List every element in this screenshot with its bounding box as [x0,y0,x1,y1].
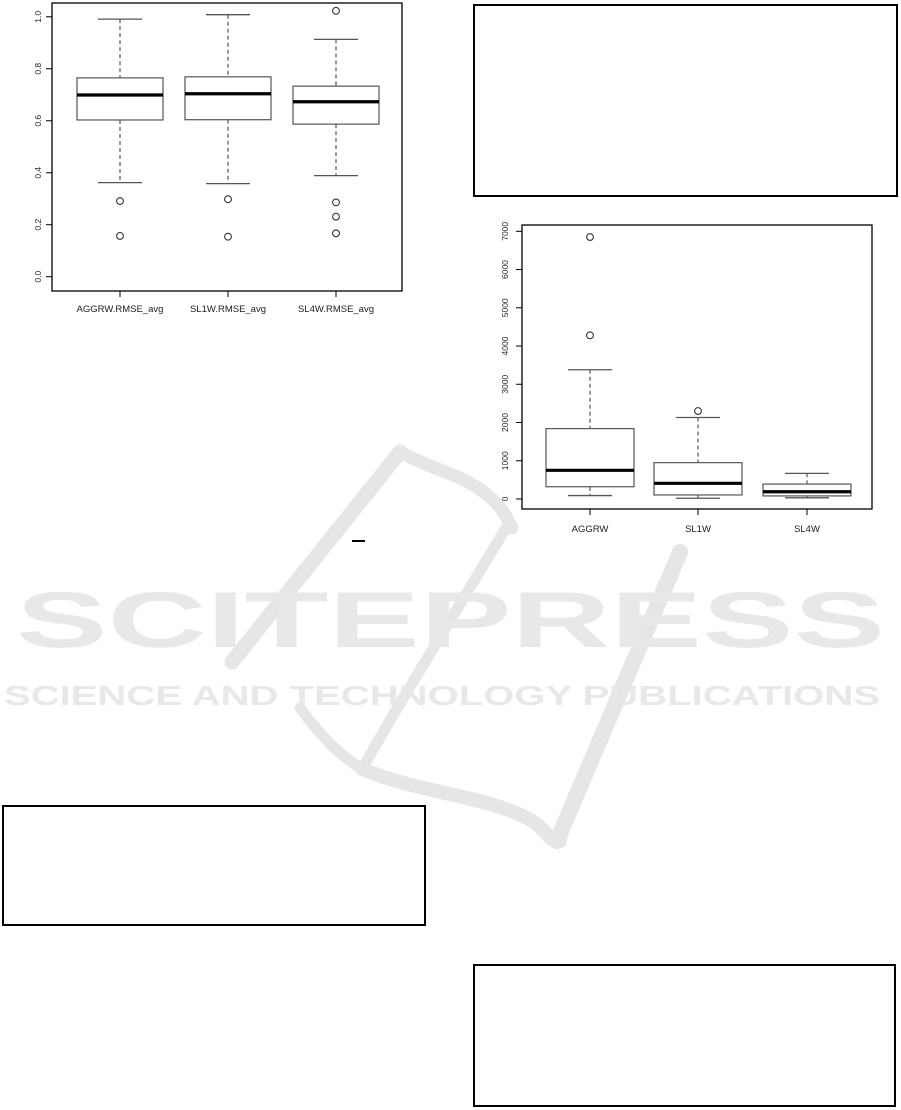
iqr-box [77,78,163,120]
fraction-bar-line [352,540,365,542]
outlier-point [695,408,702,415]
y-axis-tick-label: 0 [500,496,510,501]
boxplot-series-AGGRW: AGGRW [546,234,634,535]
swoosh-check [300,708,396,769]
outlier-point [117,232,124,239]
outlier-point [117,198,124,205]
boxplot-series-AGGRW.RMSE_avg: AGGRW.RMSE_avg [77,19,164,315]
iqr-box [185,77,271,120]
outlier-point [333,230,340,237]
outlier-point [225,196,232,203]
boxplot-series-SL4W.RMSE_avg: SL4W.RMSE_avg [293,7,379,315]
outlier-point [333,7,340,14]
y-axis-tick-label: 2000 [500,413,510,432]
watermark-tagline: SCIENCE AND TECHNOLOGY PUBLICATIONS [4,680,880,711]
empty-frame-top-right [473,4,898,197]
paper-page: { "page": {"background": "#ffffff"}, "wa… [0,0,901,1110]
boxplot-series-SL1W.RMSE_avg: SL1W.RMSE_avg [185,15,271,315]
y-axis-tick-label: 7000 [500,222,510,241]
category-label: AGGRW [572,524,609,535]
y-axis-tick-label: 0.8 [33,63,43,75]
category-label: SL4W.RMSE_avg [298,304,374,315]
iqr-box [546,429,634,487]
boxplot-series-SL1W: SL1W [654,408,742,535]
outlier-point [225,233,232,240]
y-axis-tick-label: 0.6 [33,115,43,127]
boxplot-series-SL4W: SL4W [763,473,851,535]
iqr-box [763,484,851,496]
y-axis-tick-label: 1.0 [33,11,43,23]
runtime-boxplot-figure: 01000200030004000500060007000AGGRWSL1WSL… [455,215,901,545]
y-axis-tick-label: 0.4 [33,167,43,179]
iqr-box [293,86,379,124]
category-label: SL1W [685,524,711,535]
outlier-point [333,199,340,206]
y-axis-tick-label: 1000 [500,451,510,470]
y-axis-tick-label: 5000 [500,298,510,317]
category-label: AGGRW.RMSE_avg [77,304,164,315]
y-axis-tick-label: 3000 [500,375,510,394]
plot-border [52,3,402,291]
rmse-boxplot-figure: 0.00.20.40.60.81.0AGGRW.RMSE_avgSL1W.RMS… [0,0,430,330]
iqr-box [654,463,742,495]
empty-frame-bottom-right [473,964,896,1107]
y-axis-tick-label: 0.2 [33,219,43,231]
y-axis-tick-label: 6000 [500,260,510,279]
outlier-point [587,234,594,241]
empty-frame-bottom-left [2,805,426,926]
outlier-point [587,332,594,339]
y-axis-tick-label: 4000 [500,336,510,355]
y-axis-tick-label: 0.0 [33,271,43,283]
outlier-point [333,213,340,220]
category-label: SL4W [794,524,820,535]
watermark-wordmark: SCITEPRESS [16,575,885,664]
category-label: SL1W.RMSE_avg [190,304,266,315]
